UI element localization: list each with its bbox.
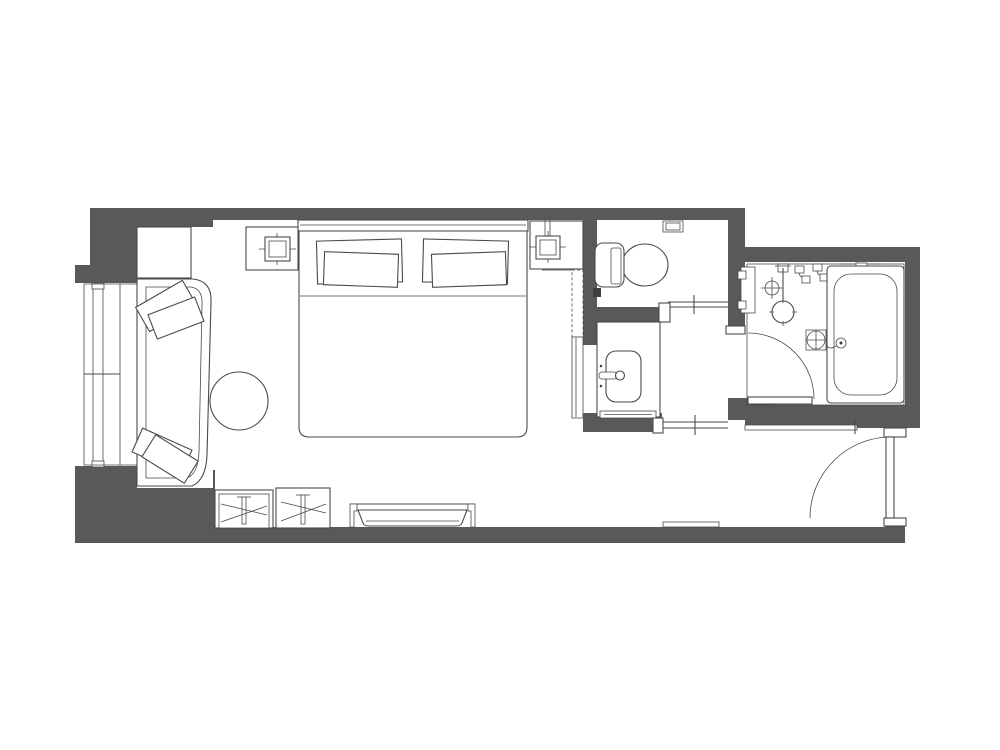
window-top-stub — [75, 265, 137, 283]
ceiling-crosshair — [761, 277, 783, 299]
bath-door-arc — [748, 333, 814, 399]
luggage-rack-2 — [276, 488, 330, 528]
entry-bottom-jamb — [884, 518, 906, 526]
bath-top-wall — [730, 247, 920, 262]
window-bay — [84, 283, 137, 467]
bench-tray — [358, 510, 467, 526]
wardrobe-lower — [572, 337, 583, 418]
bathtub-inner — [834, 274, 897, 395]
luggage-bench — [350, 504, 475, 527]
bath-door-leaf — [748, 397, 812, 404]
hall-door-jamb — [653, 418, 663, 433]
luggage-rack-1 — [215, 490, 273, 528]
wardrobe-unit — [542, 270, 583, 418]
toilet-paper-holder — [593, 288, 601, 297]
entry-top-jamb — [884, 428, 906, 437]
floor-plan-page — [0, 0, 1000, 750]
floor-drain — [806, 330, 826, 350]
toilet-seat-hinge — [611, 248, 621, 284]
towel-bar — [600, 411, 656, 418]
toilet-room — [593, 221, 728, 322]
bed-pillow-right — [422, 239, 508, 287]
bottom-wall — [213, 527, 905, 543]
bathtub — [827, 266, 904, 403]
wardrobe-upper-dashed — [572, 270, 583, 337]
window-glazing — [93, 287, 103, 463]
flush-panel — [663, 221, 683, 232]
headboard — [298, 220, 528, 231]
bath-right-wall — [905, 247, 920, 428]
corner-table — [137, 227, 191, 278]
toilet — [595, 243, 668, 287]
bath-bottom-wall — [745, 405, 905, 428]
round-side-table — [210, 372, 268, 430]
entry-door-leaf — [886, 437, 894, 518]
core-left-wall — [583, 220, 597, 345]
entry-door-arc — [810, 437, 891, 518]
toilet-bowl — [622, 244, 668, 286]
toilet-door-jamb — [659, 303, 670, 322]
bottom-wall-ledge — [663, 522, 719, 527]
bench-foot-left — [350, 504, 357, 527]
king-bed — [298, 220, 528, 437]
toilet-sliding-door — [659, 295, 728, 322]
hall-sliding-door — [653, 415, 728, 435]
bath-corner-block — [885, 408, 920, 428]
floor-plan-canvas — [0, 0, 1000, 750]
toilet-bottom-wall — [583, 307, 660, 322]
entry-swing-door — [810, 428, 906, 526]
bed-pillow-left — [316, 239, 402, 287]
table-lamp-left — [259, 233, 296, 265]
hand-shower-set — [795, 264, 828, 283]
bottom-right-block — [885, 526, 905, 543]
vanity-area — [597, 322, 728, 435]
bath-door-top-jamb — [726, 326, 745, 334]
bench-foot-right — [468, 504, 475, 527]
bathroom-swing-door — [726, 326, 814, 404]
window-cap-bottom — [92, 461, 104, 467]
